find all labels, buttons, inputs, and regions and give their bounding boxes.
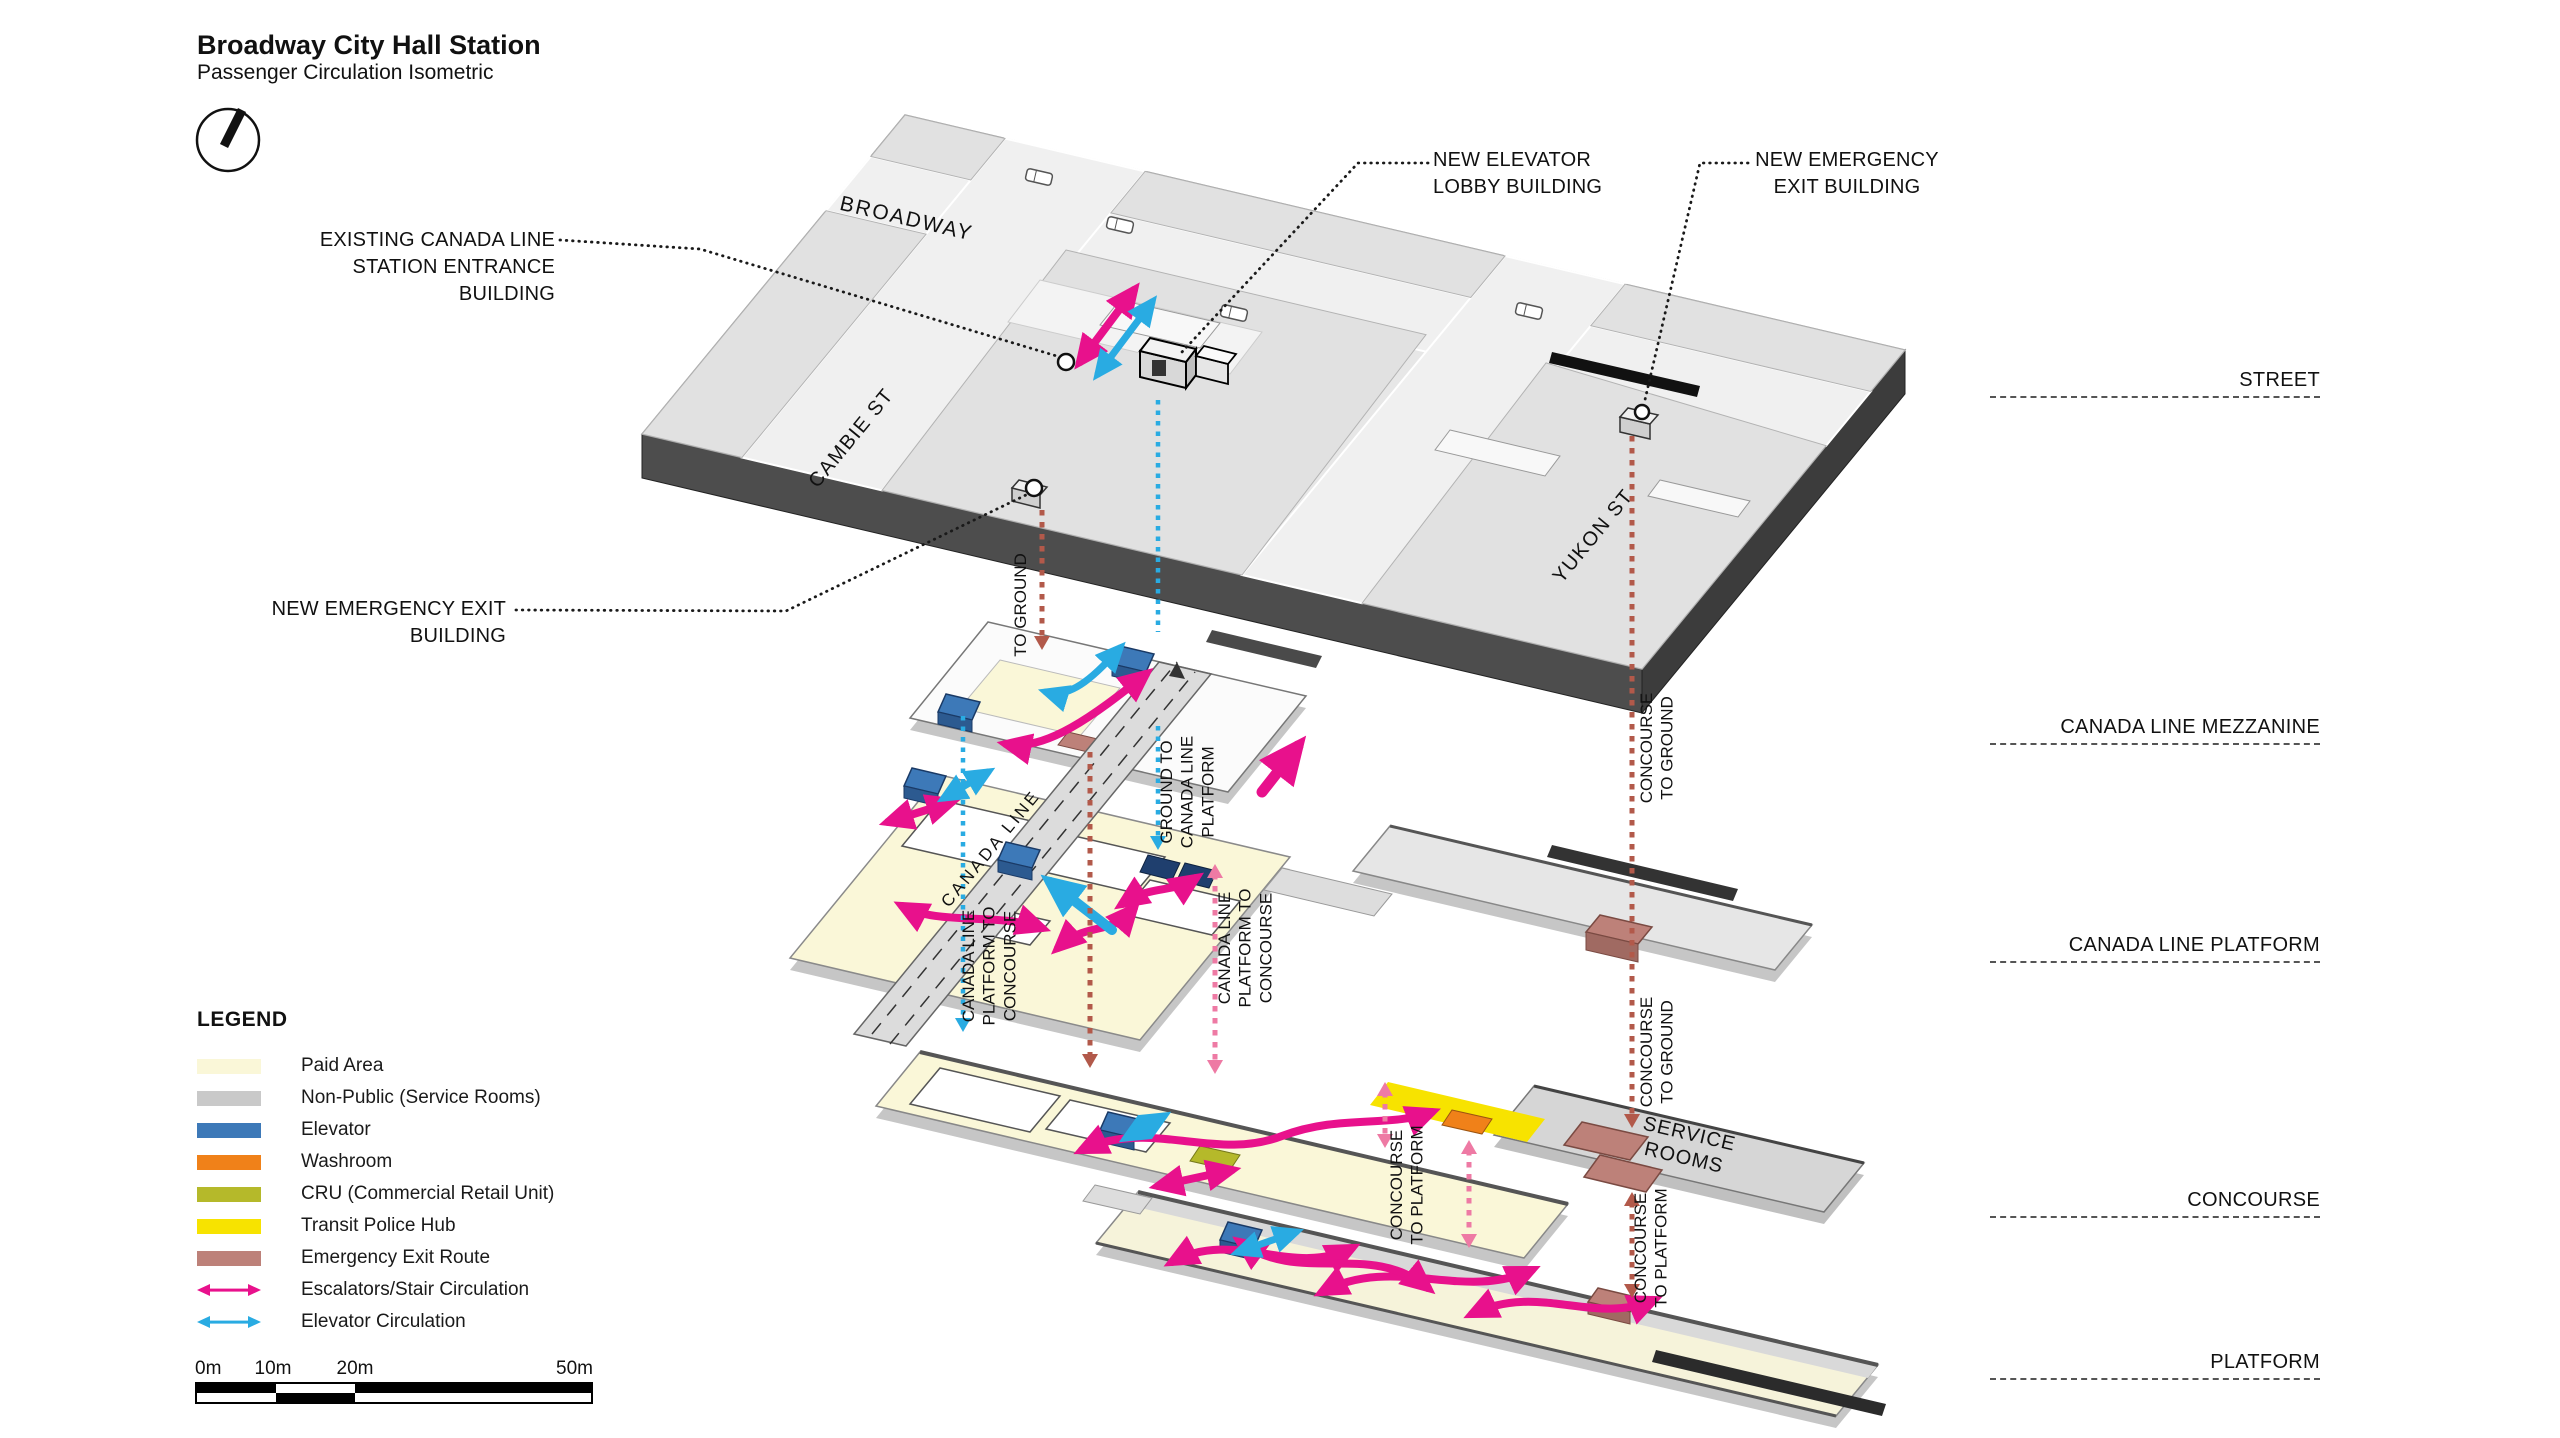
level-label: STREET [1990, 369, 2320, 396]
legend-item-washroom: Washroom [197, 1146, 627, 1178]
scale-bar: 0m 10m 20m 50m [195, 1358, 593, 1404]
north-arrow-icon [197, 109, 259, 171]
mezzanine-railing [1206, 630, 1322, 668]
callout-existing-entrance: EXISTING CANADA LINESTATION ENTRANCEBUIL… [295, 227, 555, 308]
transit-police-swatch [197, 1219, 261, 1234]
level-label: CANADA LINE PLATFORM [1990, 934, 2320, 961]
legend-item-elevator-circulation: Elevator Circulation [197, 1306, 627, 1338]
escalator-arrow-icon [197, 1282, 261, 1298]
legend: LEGEND Paid Area Non-Public (Service Roo… [197, 1008, 627, 1338]
legend-item-elevator: Elevator [197, 1114, 627, 1146]
level-divider [1990, 1378, 2320, 1380]
legend-item-non-public: Non-Public (Service Rooms) [197, 1082, 627, 1114]
legend-item-escalator-circulation: Escalators/Stair Circulation [197, 1274, 627, 1306]
page-subtitle: Passenger Circulation Isometric [197, 60, 541, 86]
level-label: PLATFORM [1990, 1351, 2320, 1378]
level-row-cl-platform: CANADA LINE PLATFORM [1990, 934, 2320, 963]
level-divider [1990, 396, 2320, 398]
legend-item-emergency-exit: Emergency Exit Route [197, 1242, 627, 1274]
title-block: Broadway City Hall Station Passenger Cir… [197, 30, 541, 86]
flow-label-concourse-to-platform: CONCOURSETO PLATFORM [1387, 1125, 1427, 1244]
level-row-mezzanine: CANADA LINE MEZZANINE [1990, 716, 2320, 745]
non-public-swatch [197, 1091, 261, 1106]
level-row-street: STREET [1990, 369, 2320, 398]
cru-swatch [197, 1187, 261, 1202]
level-label: CONCOURSE [1990, 1189, 2320, 1216]
elevator-swatch [197, 1123, 261, 1138]
flow-label-concourse-to-ground: CONCOURSETO GROUND [1637, 693, 1677, 804]
legend-item-paid-area: Paid Area [197, 1050, 627, 1082]
scale-bar-graphic [195, 1382, 593, 1404]
washroom-swatch [197, 1155, 261, 1170]
paid-area-swatch [197, 1059, 261, 1074]
legend-item-cru: CRU (Commercial Retail Unit) [197, 1178, 627, 1210]
elevator-arrow-icon [197, 1314, 261, 1330]
emergency-exit-swatch [197, 1251, 261, 1266]
callout-new-emergency-exit-right: NEW EMERGENCYEXIT BUILDING [1752, 147, 1942, 201]
street-level: BROADWAY CAMBIE ST YUKON ST [642, 115, 1905, 713]
legend-heading: LEGEND [197, 1008, 627, 1032]
flow-label-ground-to-clp: GROUND TOCANADA LINEPLATFORM [1157, 736, 1217, 848]
legend-item-transit-police: Transit Police Hub [197, 1210, 627, 1242]
level-divider [1990, 1216, 2320, 1218]
anchor-circle [1058, 354, 1074, 370]
page: BROADWAY CAMBIE ST YUKON ST [0, 0, 2560, 1438]
anchor-circle [1635, 405, 1649, 419]
scale-bar-labels: 0m 10m 20m 50m [195, 1358, 593, 1380]
level-divider [1990, 743, 2320, 745]
level-row-platform: PLATFORM [1990, 1351, 2320, 1380]
flow-label-concourse-to-platform: CONCOURSETO PLATFORM [1631, 1188, 1671, 1307]
callout-new-elevator-lobby: NEW ELEVATORLOBBY BUILDING [1433, 147, 1633, 201]
flow-label-clp-to-concourse: CANADA LINEPLATFORM TOCONCOURSE [1215, 888, 1275, 1007]
level-row-concourse: CONCOURSE [1990, 1189, 2320, 1218]
flow-label-concourse-to-ground: CONCOURSETO GROUND [1637, 997, 1677, 1108]
level-label: CANADA LINE MEZZANINE [1990, 716, 2320, 743]
level-divider [1990, 961, 2320, 963]
page-title: Broadway City Hall Station [197, 30, 541, 60]
flow-label-clp-to-concourse: CANADA LINEPLATFORM TOCONCOURSE [959, 906, 1019, 1025]
anchor-circle [1026, 480, 1042, 496]
callout-new-emergency-exit-left: NEW EMERGENCY EXITBUILDING [266, 596, 506, 650]
flow-label-to-ground: TO GROUND [1011, 553, 1030, 657]
